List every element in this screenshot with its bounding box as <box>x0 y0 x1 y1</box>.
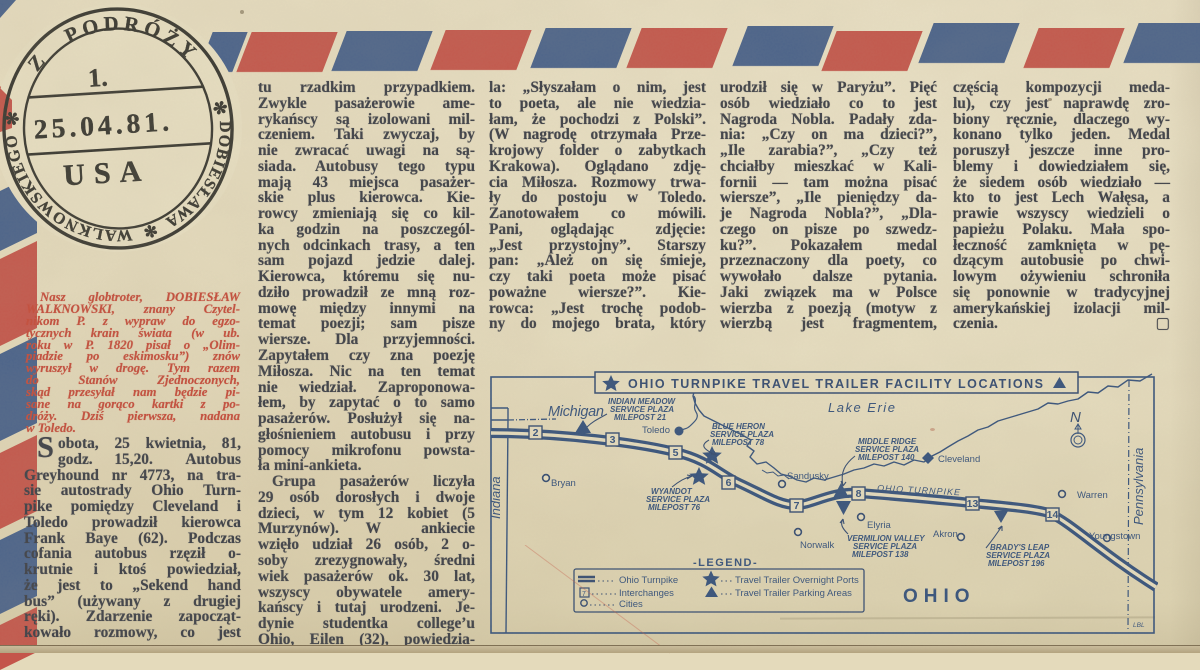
svg-text:7: 7 <box>582 591 586 598</box>
svg-text:13: 13 <box>967 498 979 510</box>
svg-text:1.: 1. <box>87 63 108 93</box>
svg-text:Travel Trailer Overnight Ports: Travel Trailer Overnight Ports <box>735 575 859 586</box>
svg-text:Cleveland: Cleveland <box>938 454 980 465</box>
svg-text:Toledo: Toledo <box>642 425 670 436</box>
svg-text:7: 7 <box>794 500 800 512</box>
svg-text:MILEPOST 140: MILEPOST 140 <box>858 453 915 462</box>
svg-text:Norwalk: Norwalk <box>800 540 835 551</box>
svg-text:OHIO: OHIO <box>903 586 976 607</box>
svg-text:2: 2 <box>533 427 539 439</box>
svg-text:MILEPOST 138: MILEPOST 138 <box>852 550 909 559</box>
svg-text:USA: USA <box>62 154 151 192</box>
svg-text:14: 14 <box>1047 509 1059 521</box>
svg-text:Youngstown: Youngstown <box>1089 531 1140 542</box>
svg-text:MILEPOST 76: MILEPOST 76 <box>648 503 701 512</box>
svg-text:OHIO TURNPIKE TRAVEL TRAILER F: OHIO TURNPIKE TRAVEL TRAILER FACILITY LO… <box>628 377 1043 391</box>
svg-text:✻: ✻ <box>2 110 22 126</box>
svg-text:Akron: Akron <box>933 529 958 540</box>
svg-text:-LEGEND-: -LEGEND- <box>693 557 758 569</box>
svg-text:Cities: Cities <box>619 599 643 610</box>
svg-text:6: 6 <box>726 477 732 489</box>
svg-text:Warren: Warren <box>1077 490 1108 501</box>
svg-text:MILEPOST 21: MILEPOST 21 <box>614 413 667 422</box>
svg-text:8: 8 <box>856 488 862 500</box>
svg-text:Ohio Turnpike: Ohio Turnpike <box>619 575 678 586</box>
svg-text:Lake Erie: Lake Erie <box>828 400 896 415</box>
svg-text:LBL: LBL <box>1133 622 1145 629</box>
svg-text:Interchanges: Interchanges <box>619 588 674 599</box>
svg-text:Sandusky: Sandusky <box>787 471 829 482</box>
svg-text:Pennsylvania: Pennsylvania <box>1131 448 1146 525</box>
svg-text:Travel Trailer Parking Areas: Travel Trailer Parking Areas <box>735 588 852 599</box>
svg-text:3: 3 <box>610 434 616 446</box>
svg-text:Bryan: Bryan <box>551 478 576 489</box>
svg-text:N: N <box>1070 409 1081 426</box>
svg-text:Indiana: Indiana <box>488 476 503 519</box>
svg-text:5: 5 <box>673 447 679 459</box>
svg-text:Elyria: Elyria <box>867 520 891 531</box>
svg-text:Michigan: Michigan <box>548 404 604 420</box>
svg-text:MILEPOST 78: MILEPOST 78 <box>712 438 765 447</box>
svg-text:MILEPOST 196: MILEPOST 196 <box>988 559 1045 568</box>
